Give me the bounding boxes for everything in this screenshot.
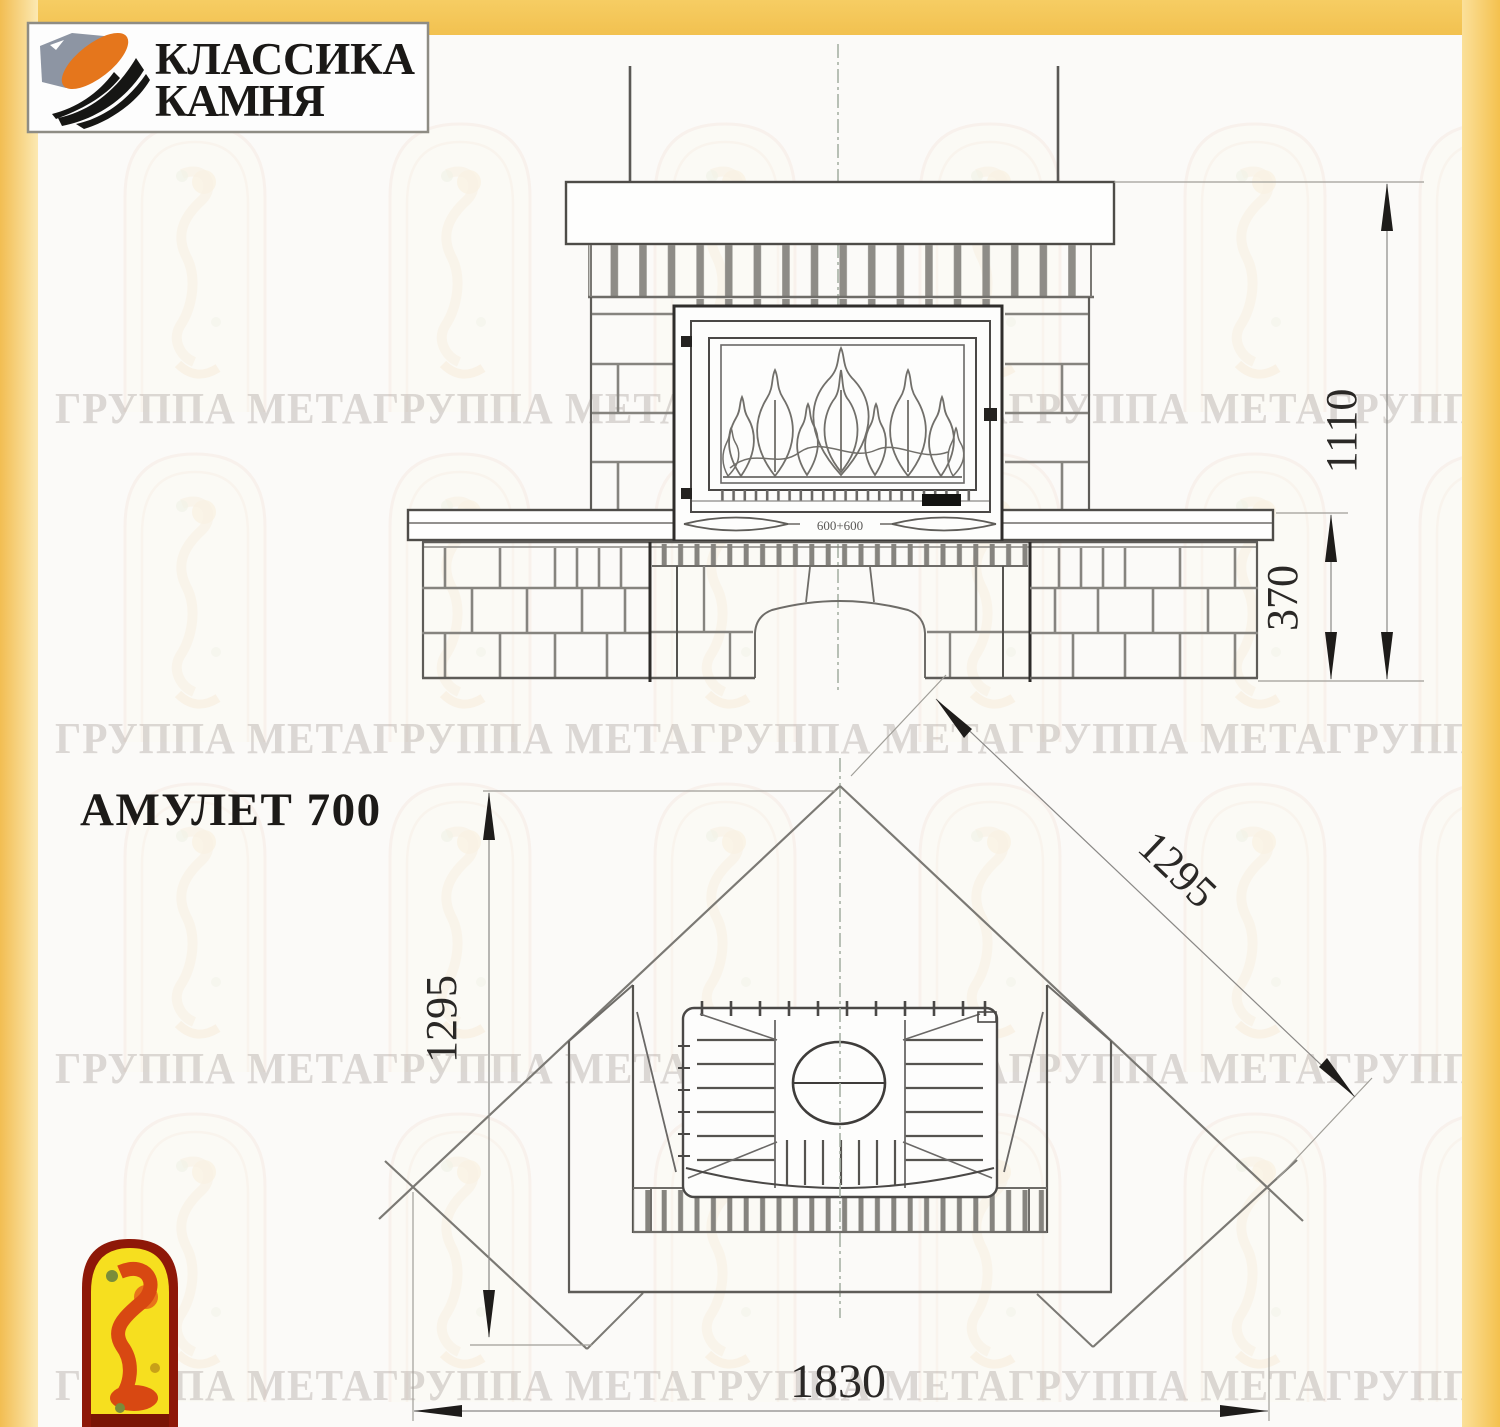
svg-text:370: 370 [1258, 565, 1307, 631]
svg-text:600+600: 600+600 [817, 518, 863, 533]
svg-text:1295: 1295 [1129, 821, 1227, 917]
svg-text:1295: 1295 [417, 975, 466, 1063]
svg-text:АМУЛЕТ 700: АМУЛЕТ 700 [80, 784, 382, 836]
svg-text:1110: 1110 [1317, 389, 1366, 474]
svg-text:КАМНЯ: КАМНЯ [155, 76, 325, 126]
svg-text:1830: 1830 [790, 1355, 886, 1408]
